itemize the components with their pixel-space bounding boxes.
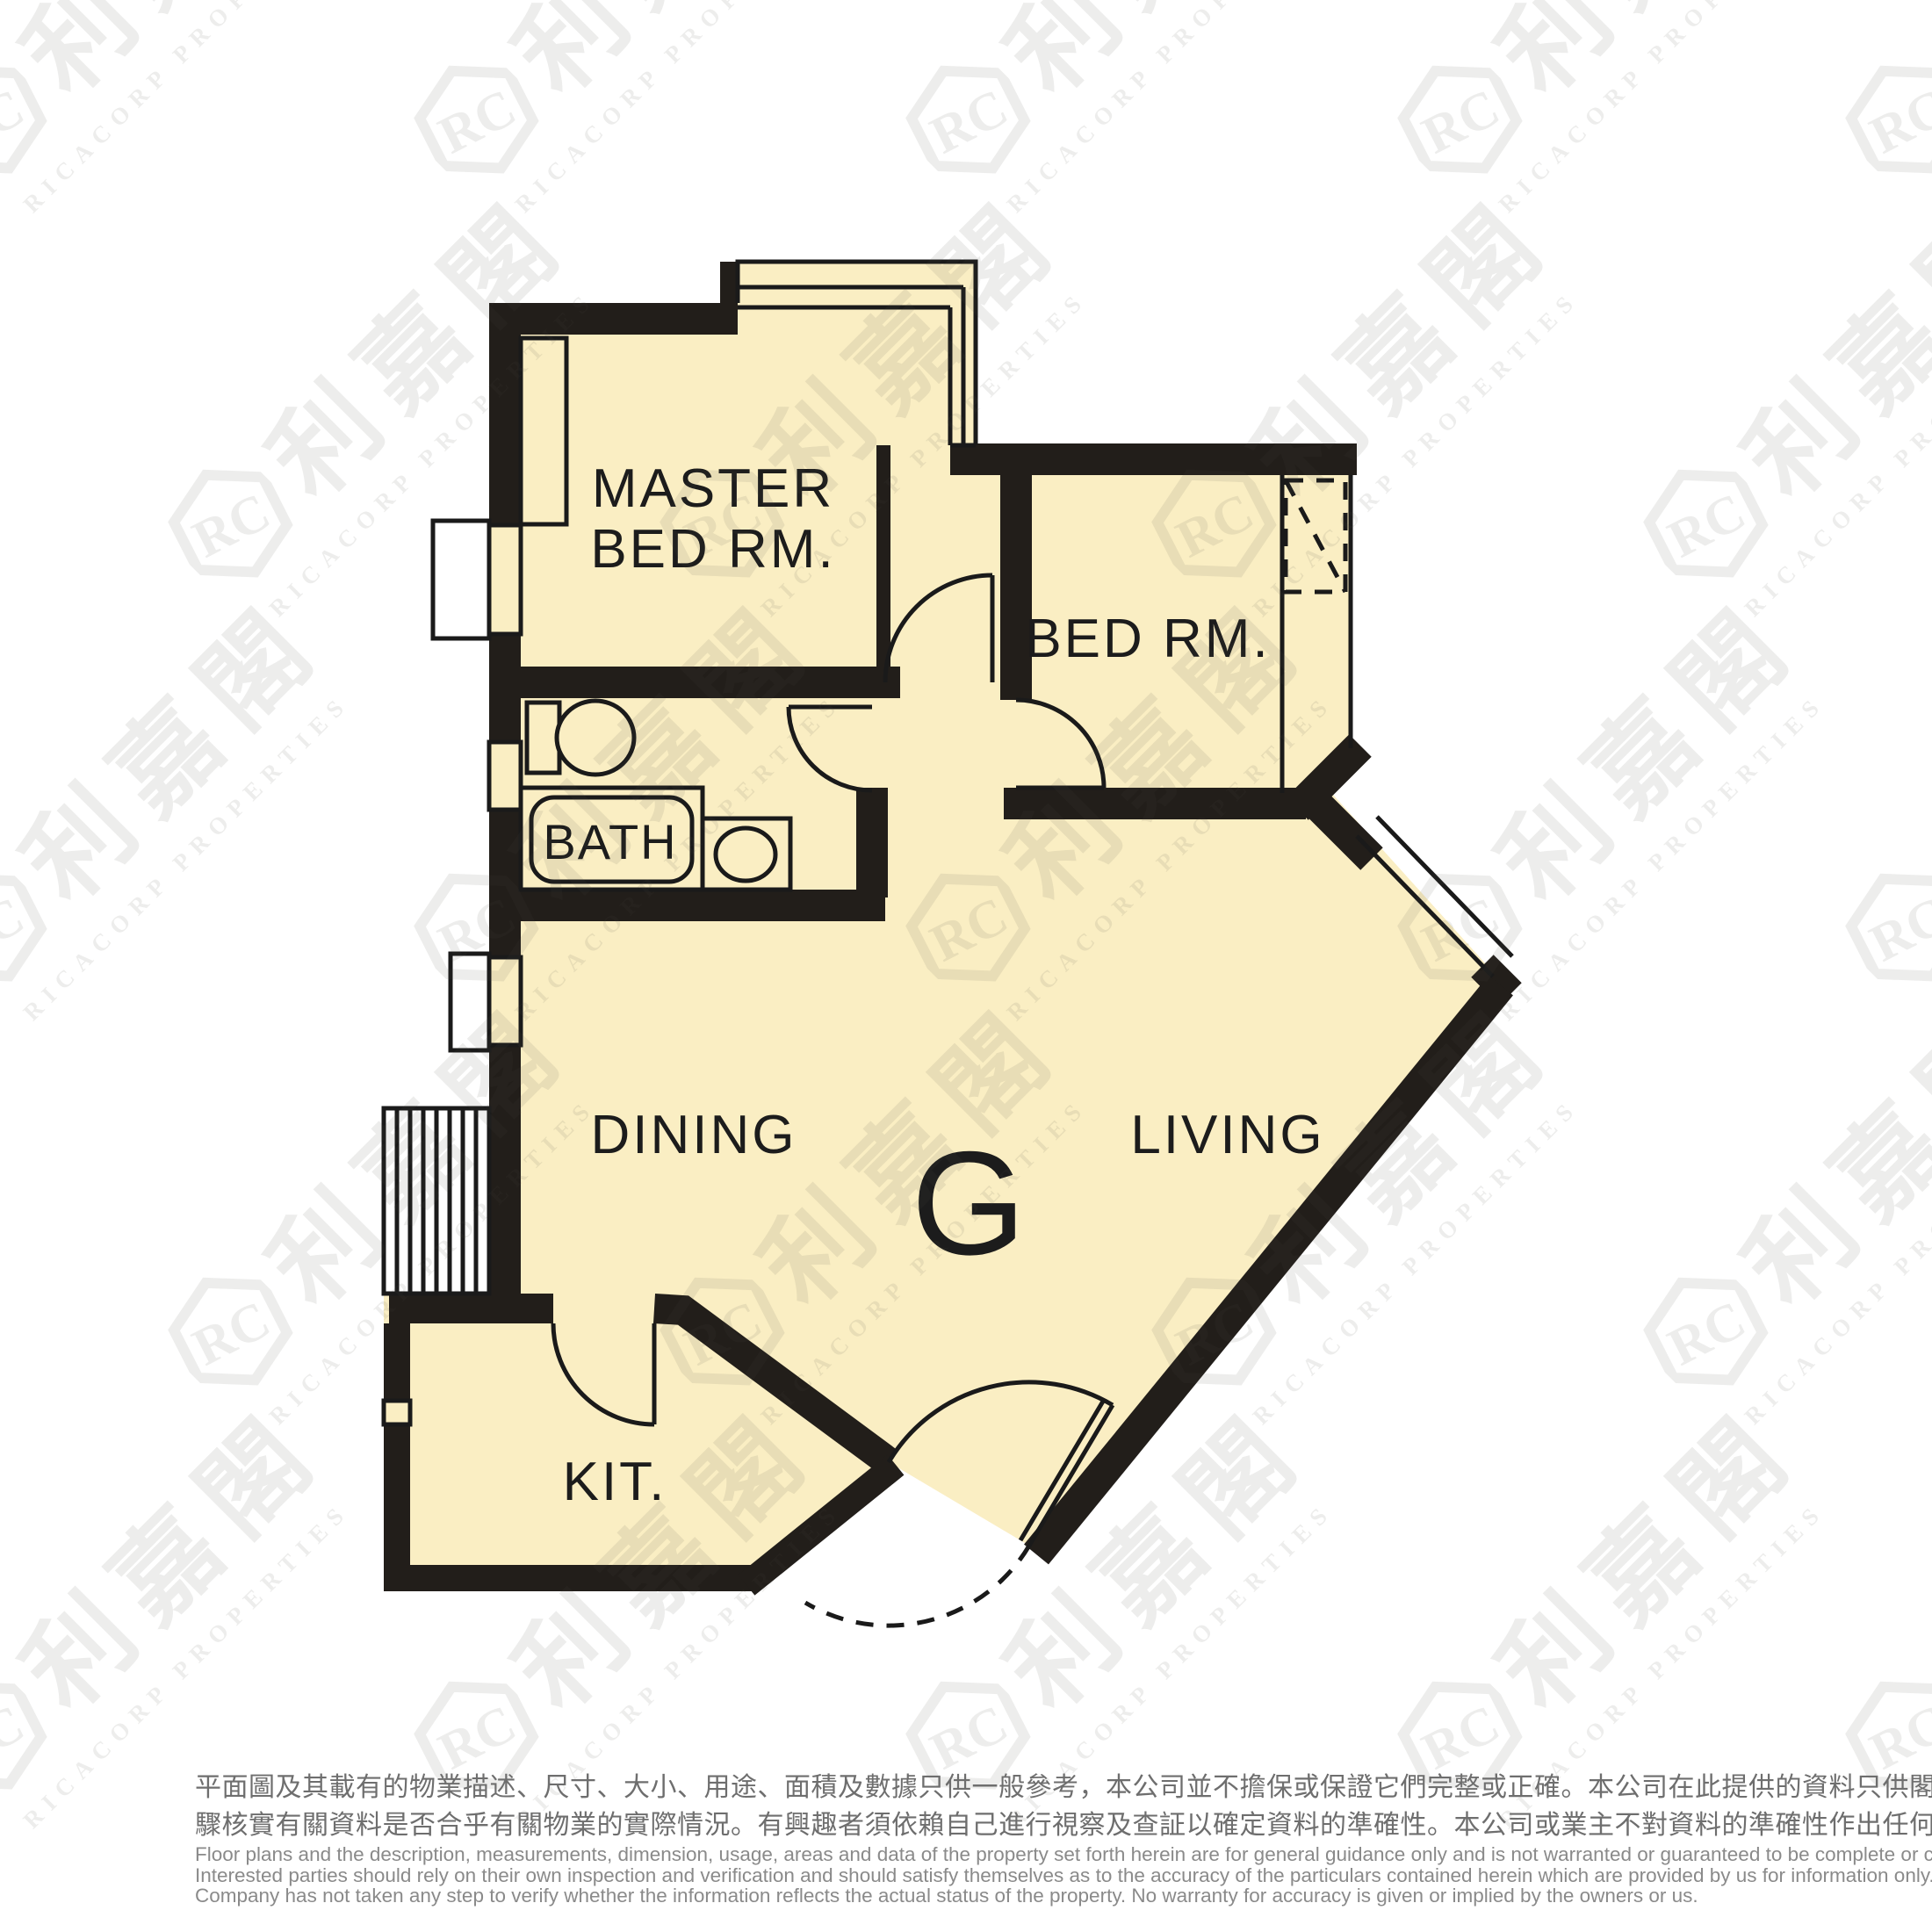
dining-window (489, 957, 521, 1045)
disclaimer: 平面圖及其載有的物業描述、尺寸、大小、用途、面積及數據只供一般參考，本公司並不擔… (195, 1769, 1767, 1907)
floor-plan-page: { "watermark": { "monogram": "RC", "bran… (0, 0, 1932, 1932)
louver-shaft (384, 1108, 489, 1294)
disclaimer-en-line2: Interested parties should rely on their … (195, 1865, 1767, 1886)
master-window (489, 525, 521, 634)
label-dining: DINING (591, 1105, 797, 1165)
label-living: LIVING (1130, 1105, 1324, 1165)
toilet (527, 701, 634, 775)
floor-bay-window (723, 262, 976, 474)
entrance-door-outswing (805, 1546, 1029, 1626)
wall-bay-post (720, 262, 738, 303)
kitchen-window (384, 1401, 410, 1424)
label-kitchen: KIT. (563, 1452, 667, 1512)
disclaimer-en-line1: Floor plans and the description, measure… (195, 1844, 1767, 1865)
label-unit: G (912, 1121, 1027, 1286)
disclaimer-zh-line1: 平面圖及其載有的物業描述、尺寸、大小、用途、面積及數據只供一般參考，本公司並不擔… (195, 1769, 1767, 1806)
bath-window (489, 742, 521, 810)
dining-ac-box (451, 954, 489, 1050)
label-bathroom: BATH (543, 814, 677, 869)
label-master-bedroom-line2: BED RM. (590, 519, 835, 580)
disclaimer-en-line3: Company has not taken any step to verify… (195, 1885, 1767, 1907)
master-ac-box (433, 521, 489, 638)
label-master-bedroom-line1: MASTER (592, 458, 834, 519)
floor-plan-drawing: MASTER BED RM. BED RM. BATH DINING LIVIN… (0, 0, 1932, 1932)
disclaimer-zh-line2: 驟核實有關資料是否合乎有關物業的實際情況。有興趣者須依賴自己進行視察及查証以確定… (195, 1806, 1767, 1844)
label-bedroom: BED RM. (1025, 609, 1270, 669)
